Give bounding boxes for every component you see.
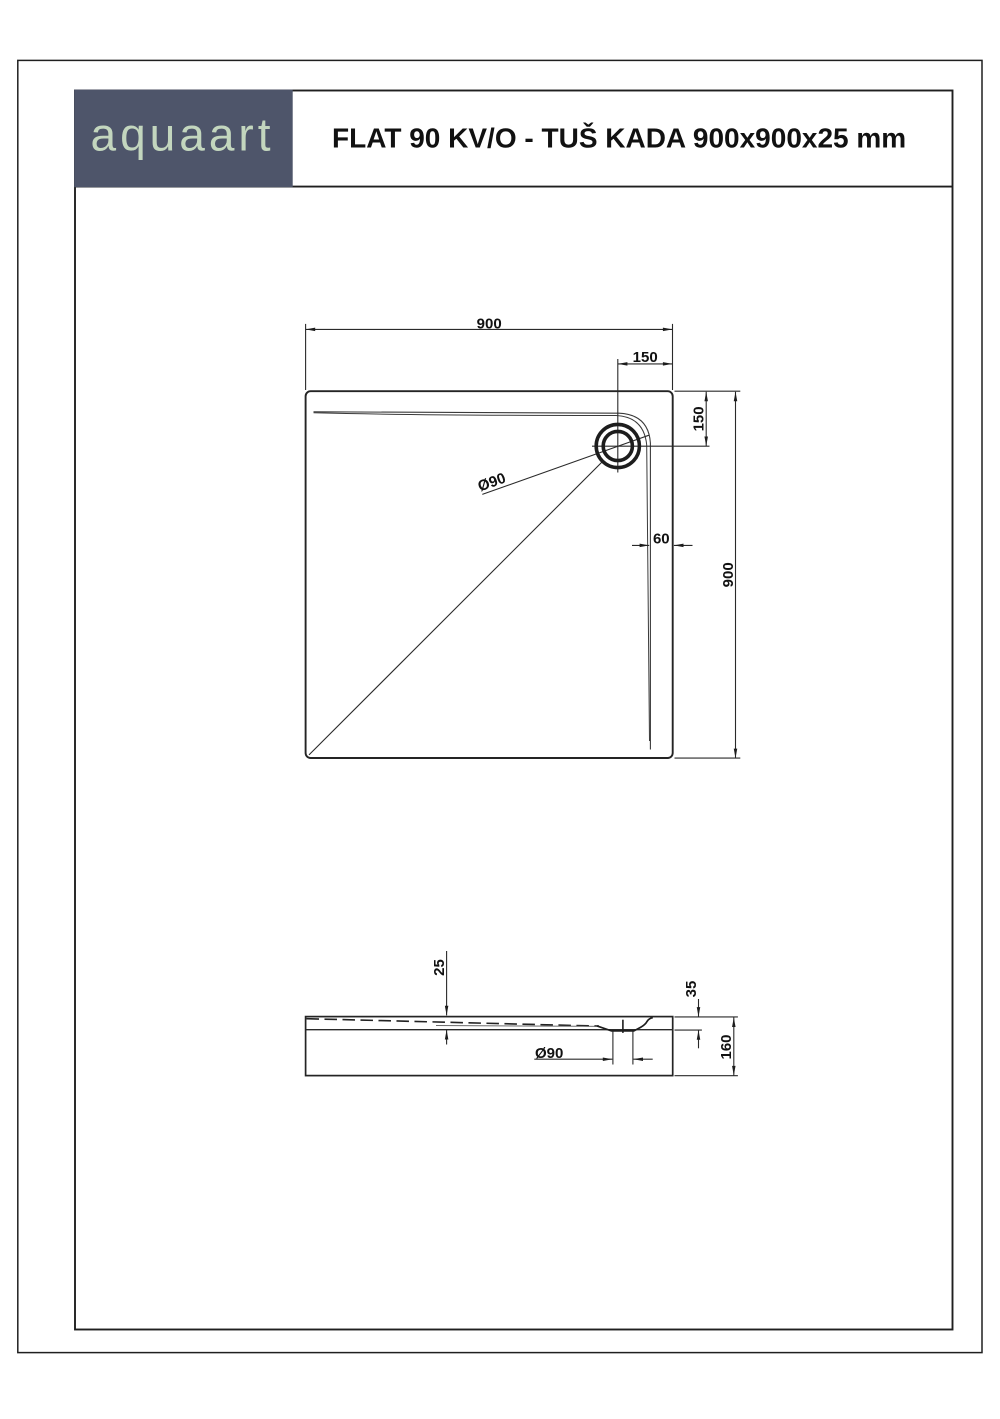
svg-text:150: 150 bbox=[691, 406, 708, 431]
svg-text:150: 150 bbox=[633, 349, 658, 366]
svg-text:900: 900 bbox=[477, 315, 502, 332]
svg-text:25: 25 bbox=[431, 959, 448, 976]
svg-text:Ø90: Ø90 bbox=[535, 1045, 563, 1062]
svg-text:160: 160 bbox=[718, 1034, 735, 1059]
svg-text:900: 900 bbox=[720, 562, 737, 587]
svg-text:35: 35 bbox=[683, 981, 700, 998]
svg-text:Ø90: Ø90 bbox=[476, 470, 508, 496]
svg-text:FLAT 90 KV/O - TUŠ KADA 900x90: FLAT 90 KV/O - TUŠ KADA 900x900x25 mm bbox=[332, 122, 906, 154]
svg-text:aquaart: aquaart bbox=[90, 109, 274, 161]
svg-text:60: 60 bbox=[653, 531, 670, 548]
